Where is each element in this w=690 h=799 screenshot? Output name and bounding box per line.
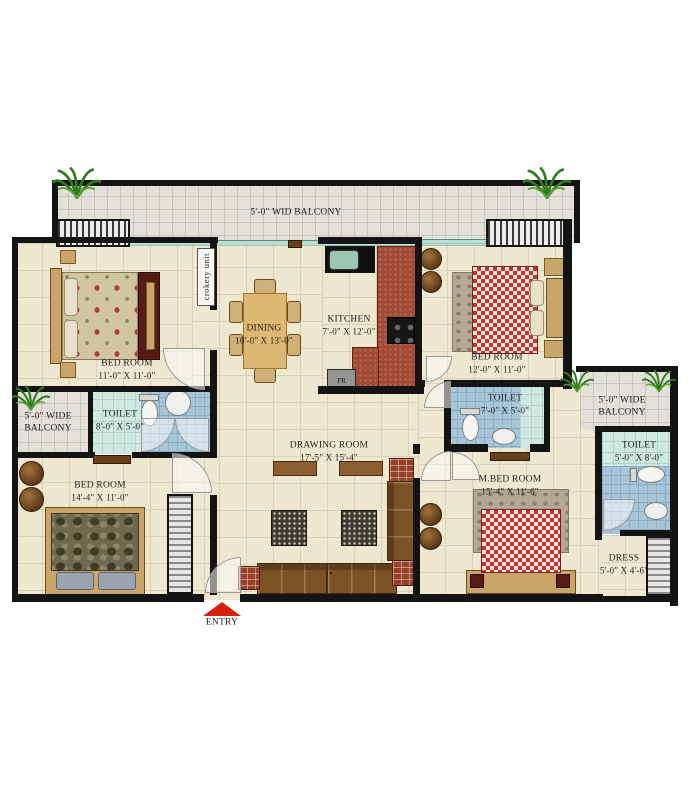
pillow <box>64 320 78 358</box>
bed-headboard <box>50 268 62 364</box>
room-dims: 11'-0" X 11'-0" <box>99 370 156 382</box>
crockery-unit-label: crokery unit <box>201 253 211 300</box>
wc-tank <box>630 468 637 482</box>
room-name: BED ROOM <box>99 359 156 371</box>
room-name: TOILET <box>615 441 663 453</box>
threshold <box>288 240 302 248</box>
bed-post <box>470 574 484 588</box>
wall <box>413 444 420 454</box>
bed <box>481 509 561 573</box>
side-table <box>238 566 260 590</box>
sofa <box>257 563 327 594</box>
room-label-dining: DINING 10'-0" X 13'-0" <box>235 324 293 347</box>
threshold <box>490 452 530 461</box>
side-table <box>392 560 415 586</box>
room-label-bedroom-bottom-left: BED ROOM 14'-4" X 11'-0" <box>71 481 128 504</box>
dining-chair <box>254 279 276 294</box>
dining-chair <box>287 301 301 323</box>
dining-chair <box>229 301 243 323</box>
wall <box>544 380 550 452</box>
bed <box>472 266 538 354</box>
room-label-drawing-room: DRAWING ROOM 17'-5" X 15'-4" <box>290 441 368 464</box>
room-dims: 14'-4" X 11'-0" <box>71 492 128 504</box>
crockery-unit: crokery unit <box>197 248 215 306</box>
sofa <box>387 481 416 561</box>
wall <box>563 219 572 389</box>
stool <box>420 271 442 293</box>
entry-arrow-icon <box>203 602 241 616</box>
plant-icon <box>48 166 106 200</box>
wall <box>596 596 678 602</box>
wall <box>598 426 676 432</box>
side-table <box>60 362 76 378</box>
room-dims: 7'-0" X 12'-0" <box>323 326 376 338</box>
wall <box>670 366 678 606</box>
entry-label-text: ENTRY <box>206 617 238 629</box>
stool <box>419 527 442 550</box>
wall <box>210 350 217 458</box>
side-table <box>60 250 76 264</box>
room-name: DRESS <box>600 554 648 566</box>
wash-basin <box>644 502 668 520</box>
room-label-bedroom-top-left: BED ROOM 11'-0" X 11'-0" <box>99 359 156 382</box>
window-sill <box>422 239 488 244</box>
balcony-label-text: 5'-0" WIDE <box>598 396 645 408</box>
pillow <box>530 310 544 336</box>
center-table <box>271 510 307 546</box>
stool <box>19 487 44 512</box>
threshold <box>93 455 131 464</box>
center-table <box>341 510 377 546</box>
room-dims: 10'-0" X 13'-0" <box>235 335 293 347</box>
wash-basin <box>165 390 191 416</box>
room-label-toilet-right: TOILET 5'-0" X 8'-0" <box>615 441 663 464</box>
bed-post <box>556 574 570 588</box>
room-dims: 5'-0" X 4'-6" <box>600 565 648 577</box>
stool <box>19 461 44 486</box>
room-label-bedroom-top-right: BED ROOM 12'-0" X 11'-0" <box>468 353 525 376</box>
wall <box>88 388 93 454</box>
pillow <box>56 572 94 590</box>
plant-icon <box>12 384 50 412</box>
pillow <box>98 572 136 590</box>
wall <box>595 426 602 540</box>
plant-icon <box>642 368 676 394</box>
wall <box>413 478 420 600</box>
room-dims: 5'-0" X 8'-0" <box>615 452 663 464</box>
wall <box>415 237 422 390</box>
bed-headboard <box>546 278 564 338</box>
wash-basin <box>492 428 516 445</box>
top-balcony-label: 5'-0" WID BALCONY <box>250 207 341 219</box>
wall <box>318 386 424 394</box>
plant-icon <box>560 368 594 394</box>
room-dims: 17'-5" X 15'-4" <box>290 452 368 464</box>
balcony-label-text: BALCONY <box>598 407 645 419</box>
left-balcony-label: 5'-0" WIDE BALCONY <box>24 412 71 435</box>
plant-icon <box>518 166 576 200</box>
balcony-label-text: 5'-0" WIDE <box>24 412 71 424</box>
room-dims: 8'-0" X 5'-0" <box>96 421 144 433</box>
right-balcony-label: 5'-0" WIDE BALCONY <box>598 396 645 419</box>
room-dims: 7'-0" X 5'-0" <box>481 405 529 417</box>
side-table <box>389 458 414 482</box>
pillow <box>64 278 78 316</box>
pillow <box>530 280 544 306</box>
balcony-label-text: 5'-0" WID BALCONY <box>250 207 341 219</box>
room-dims: 12'-0" X 11'-0" <box>468 364 525 376</box>
wall <box>448 380 572 387</box>
room-name: DINING <box>235 324 293 336</box>
room-name: DRAWING ROOM <box>290 441 368 453</box>
room-label-dress: DRESS 5'-0" X 4'-6" <box>600 554 648 577</box>
balcony-label-text: BALCONY <box>24 423 71 435</box>
wall <box>12 237 18 602</box>
room-name: TOILET <box>481 394 529 406</box>
room-name: TOILET <box>96 410 144 422</box>
room-label-kitchen: KITCHEN 7'-0" X 12'-0" <box>323 315 376 338</box>
room-name: M.BED ROOM <box>479 475 542 487</box>
wardrobe-shelf <box>146 282 155 350</box>
floor-plan-page: { "floor_plan": { "entry": { "label": "E… <box>0 0 690 799</box>
wall <box>12 594 204 602</box>
dining-chair <box>254 368 276 383</box>
fridge-label: FR <box>337 377 346 385</box>
bed <box>51 513 139 571</box>
wall <box>240 594 603 602</box>
wardrobe-bedroom-bottom-left <box>167 494 193 594</box>
room-label-toilet-left: TOILET 8'-0" X 5'-0" <box>96 410 144 433</box>
kitchen-sink <box>329 250 359 270</box>
entry-label: ENTRY <box>206 617 238 629</box>
room-name: BED ROOM <box>468 353 525 365</box>
decor <box>330 572 332 574</box>
wall <box>12 237 218 243</box>
wall <box>52 180 580 186</box>
wall <box>12 452 95 458</box>
window-bedroom-top-right <box>486 219 572 247</box>
room-dims: 15'-4" X 11'-6" <box>479 486 542 498</box>
room-label-master-bedroom: M.BED ROOM 15'-4" X 11'-6" <box>479 475 542 498</box>
room-name: KITCHEN <box>323 315 376 327</box>
room-label-toilet-middle: TOILET 7'-0" X 5'-0" <box>481 394 529 417</box>
wall <box>318 237 422 244</box>
stove <box>387 317 415 344</box>
wc <box>637 466 665 483</box>
stool <box>420 248 442 270</box>
wc <box>462 414 479 441</box>
sofa <box>327 563 397 594</box>
room-name: BED ROOM <box>71 481 128 493</box>
stool <box>419 503 442 526</box>
wall <box>620 530 672 536</box>
